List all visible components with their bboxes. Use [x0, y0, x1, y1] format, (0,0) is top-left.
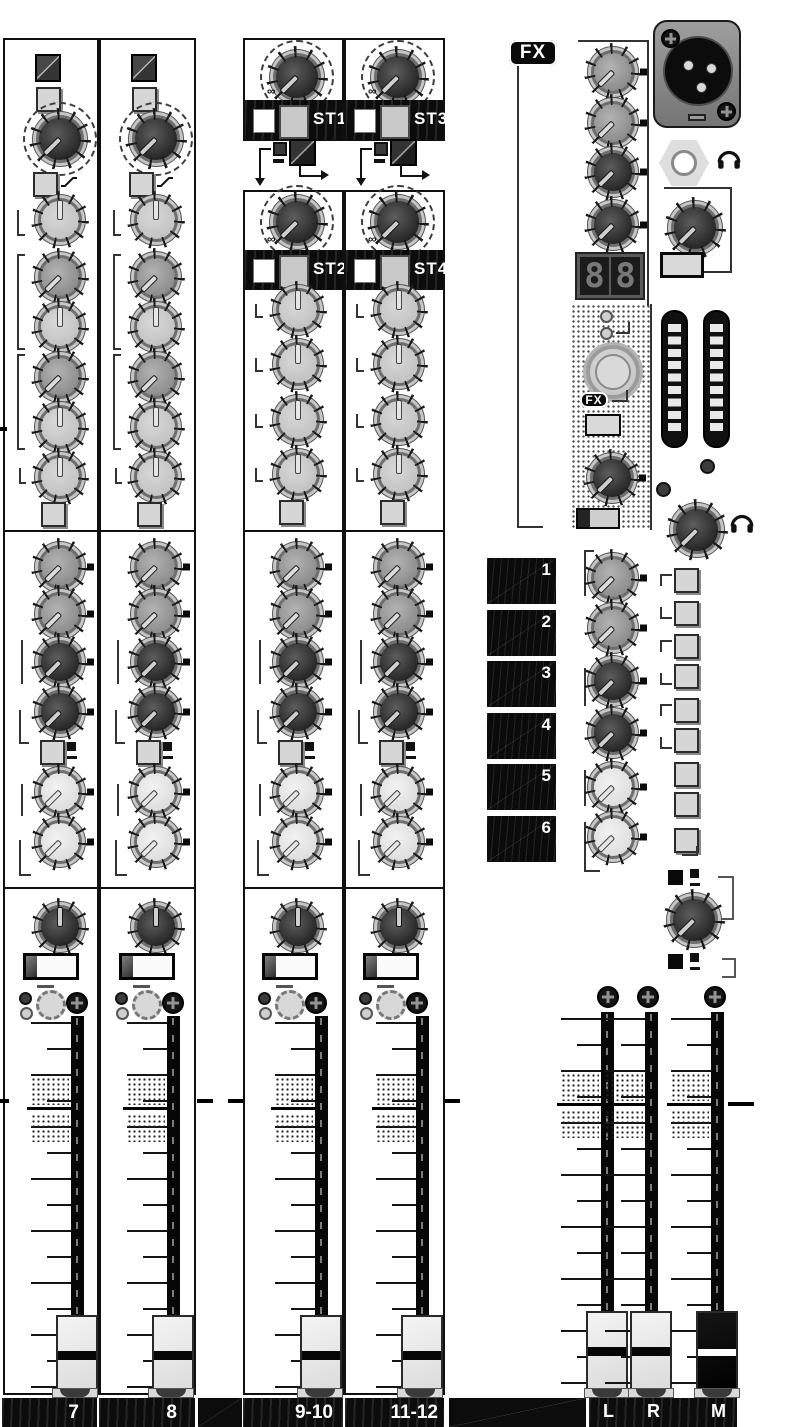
post-indicator-icon [305, 742, 314, 751]
st-gain-knob[interactable] [273, 198, 321, 246]
eq-low-knob[interactable] [377, 452, 421, 496]
edge-mark [0, 1099, 9, 1103]
knob-pointer [44, 790, 62, 808]
level-mark [325, 611, 332, 618]
bracket [115, 468, 122, 484]
eq-low-mid-knob[interactable] [38, 405, 82, 449]
fx-to-aux4-knob[interactable] [591, 203, 635, 247]
level-mark [325, 709, 332, 716]
knob-pointer [383, 710, 401, 728]
level-mark [183, 839, 190, 846]
label-right: R [647, 1401, 660, 1422]
level-mark [325, 839, 332, 846]
knob-pointer [44, 565, 62, 583]
edge-mark [0, 427, 7, 431]
fader-scale-dots [561, 1073, 599, 1101]
st-select-button[interactable] [279, 105, 309, 139]
fader-scale-dots [275, 1114, 313, 1142]
pre-indicator-icon [690, 883, 700, 886]
st-white-button[interactable] [354, 259, 376, 283]
level-mark [426, 611, 433, 618]
aux1-send-knob[interactable] [276, 545, 320, 589]
headphones-icon [716, 148, 742, 170]
post-indicator-icon [406, 742, 415, 751]
knob-pointer [140, 565, 158, 583]
mic-input-button[interactable] [131, 54, 157, 82]
bracket [113, 354, 121, 450]
unity-mark [27, 1107, 73, 1110]
stereo-strip-11-12: ∞ ST4 [344, 190, 445, 1395]
aux3-send-knob[interactable] [377, 640, 421, 684]
fx-logo-small: FX [580, 392, 608, 408]
low-cut-icon [60, 174, 78, 188]
st-label: ST1 [313, 109, 347, 129]
knob-pointer [44, 840, 62, 858]
route-line [299, 164, 323, 177]
phones-knob[interactable] [673, 506, 721, 554]
knob-pointer [282, 840, 300, 858]
aux4-master-knob[interactable] [591, 711, 635, 755]
infinity-mark: ∞ [267, 232, 276, 246]
fader-scale-dots [275, 1077, 313, 1105]
bracket [356, 358, 364, 372]
bracket [682, 846, 698, 856]
level-mark [183, 564, 190, 571]
st-label: ST2 [313, 259, 347, 279]
bracket [356, 414, 364, 428]
bracket [257, 840, 269, 876]
fx1-master-knob[interactable] [591, 765, 635, 809]
fader-scale-dots [671, 1110, 709, 1138]
aux1-send-knob[interactable] [134, 545, 178, 589]
st-label: ST4 [414, 259, 448, 279]
level-mark [183, 709, 190, 716]
aux-pre-post-button[interactable] [136, 740, 161, 765]
aux3-send-knob[interactable] [276, 640, 320, 684]
knob-pointer [140, 275, 158, 293]
xlr-face [665, 38, 731, 104]
eq-lo-mid-knob[interactable] [276, 398, 320, 442]
section-divider [245, 887, 342, 889]
channel-fader [27, 1016, 97, 1399]
fader-mount [148, 1388, 194, 1398]
fader-cap[interactable] [696, 1311, 738, 1393]
gain-knob[interactable] [36, 115, 84, 163]
knob-pointer [153, 307, 159, 327]
knob-pointer [282, 660, 300, 678]
route-source-icon [374, 159, 385, 163]
fx2-send-knob[interactable] [276, 820, 320, 864]
screw [162, 992, 184, 1014]
aux2-send-knob[interactable] [377, 592, 421, 636]
bracket [117, 784, 119, 816]
knob-pointer [279, 220, 299, 240]
knob-pointer [140, 710, 158, 728]
eq-low-knob[interactable] [38, 455, 82, 499]
channel-strip-8 [99, 38, 196, 1395]
knob-pointer [597, 835, 615, 853]
fx-level-knob[interactable] [590, 456, 634, 500]
unity-mark [601, 1103, 647, 1106]
fx-program-display: 8 8 [575, 252, 645, 300]
knob-pointer [677, 226, 697, 246]
fx-processor-panel: FX [571, 304, 652, 530]
balance-knob[interactable] [276, 905, 320, 949]
pre-indicator-icon [690, 967, 700, 970]
bracket [257, 710, 267, 744]
eq-mid-knob[interactable] [134, 355, 178, 399]
stereo-top-box-st3: ∞ ST3 [344, 38, 445, 141]
level-mark [325, 789, 332, 796]
st-select-button[interactable] [380, 105, 410, 139]
knob-pointer [140, 790, 158, 808]
aux-pre-post-button[interactable] [379, 740, 404, 765]
st-white-button[interactable] [354, 109, 376, 133]
unity-mark [667, 1103, 713, 1106]
route-switch-icon [390, 139, 417, 166]
fader-scale-dots [31, 1077, 69, 1105]
bracket [730, 187, 732, 273]
fader-cap[interactable] [300, 1315, 342, 1397]
knob-pointer [597, 626, 615, 644]
knob-pointer [596, 476, 614, 494]
level-mark [640, 222, 647, 229]
eq-high-knob[interactable] [134, 255, 178, 299]
post-indicator-icon [690, 869, 699, 878]
fader-scale-dots [376, 1077, 414, 1105]
knob-pointer [295, 290, 301, 310]
eq-bypass-button[interactable] [279, 500, 304, 525]
eq-bypass-button[interactable] [380, 500, 405, 525]
bracket [616, 322, 630, 334]
fader-scale-dots [127, 1114, 165, 1142]
level-mark [639, 475, 646, 482]
fx2-send-knob[interactable] [134, 820, 178, 864]
xlr-male-connector [653, 20, 741, 128]
balance-knob[interactable] [377, 905, 421, 949]
aux-pre-post-button[interactable] [40, 740, 65, 765]
mic-input-button[interactable] [35, 54, 61, 82]
knob-pointer [42, 137, 62, 157]
aux-pre-post-button[interactable] [278, 740, 303, 765]
aux2-master-knob[interactable] [591, 606, 635, 650]
comp-knob[interactable] [38, 198, 82, 242]
aux1-master-knob[interactable] [591, 556, 635, 600]
knob-pointer [295, 454, 301, 474]
eq-low-knob[interactable] [134, 455, 178, 499]
headphones-icon [729, 512, 755, 534]
aux4-send-knob[interactable] [377, 690, 421, 734]
arrow-down-icon [356, 178, 366, 186]
fader-mount [297, 1388, 343, 1398]
aux-master-label-6: 6 [487, 816, 556, 862]
knob-pointer [282, 710, 300, 728]
bracket [113, 210, 121, 236]
screw [661, 29, 680, 48]
level-meter-left [661, 310, 688, 448]
fx2-send-knob[interactable] [38, 820, 82, 864]
assign-button-4[interactable] [674, 664, 699, 689]
eq-hi-mid-knob[interactable] [276, 342, 320, 386]
aux3-send-knob[interactable] [134, 640, 178, 684]
eq-hi-mid-knob[interactable] [377, 342, 421, 386]
channel-fader [271, 1016, 341, 1399]
st-gain-knob[interactable] [374, 198, 422, 246]
edge-mark [228, 1099, 243, 1103]
aux3-master-knob[interactable] [591, 659, 635, 703]
eq-high-knob[interactable] [276, 288, 320, 332]
fx-mute-button[interactable] [576, 508, 620, 529]
display-digit: 8 [611, 257, 640, 295]
pre-indicator-icon [67, 756, 77, 759]
bracket [117, 640, 119, 684]
knob-pointer [57, 307, 63, 327]
eq-lo-mid-knob[interactable] [377, 398, 421, 442]
knob-pointer [383, 840, 401, 858]
knob-pointer [396, 907, 402, 927]
channel-label-9-10: 9-10 [243, 1398, 343, 1427]
knob-pointer [597, 223, 615, 241]
fx1-send-knob[interactable] [134, 770, 178, 814]
knob-pointer [153, 407, 159, 427]
aux3-send-knob[interactable] [38, 640, 82, 684]
eq-high-knob[interactable] [377, 288, 421, 332]
arrow-right-icon [422, 170, 430, 180]
screw [704, 986, 726, 1008]
st-gain-knob[interactable] [374, 53, 422, 101]
eq-mid-freq-knob[interactable] [134, 305, 178, 349]
mono-fader [667, 1012, 737, 1395]
bracket [358, 840, 370, 876]
fader-cap[interactable] [56, 1315, 98, 1397]
aux1-send-knob[interactable] [377, 545, 421, 589]
bracket [255, 358, 263, 372]
arrow-down-icon [255, 178, 265, 186]
eq-bypass-button[interactable] [41, 502, 66, 527]
knob-pointer [295, 907, 301, 927]
assign-button-1[interactable] [674, 568, 699, 593]
bracket [660, 704, 672, 716]
route-source-icon [374, 142, 388, 156]
fx-to-aux3-knob[interactable] [591, 150, 635, 194]
aux4-send-knob[interactable] [134, 690, 178, 734]
mono-route-square [668, 954, 683, 969]
fader-mount [694, 1388, 740, 1398]
fader-scale-dots [376, 1114, 414, 1142]
level-mark [87, 839, 94, 846]
mute-button[interactable] [119, 953, 175, 980]
comp-knob[interactable] [134, 198, 178, 242]
route-line [400, 164, 424, 177]
knob-pointer [380, 75, 400, 95]
eq-high-knob[interactable] [38, 255, 82, 299]
knob-pointer [679, 528, 699, 548]
level-mark [640, 784, 647, 791]
fader-cap[interactable] [630, 1311, 672, 1393]
fx1-send-knob[interactable] [276, 770, 320, 814]
bracket [255, 414, 263, 428]
channel-fader [123, 1016, 193, 1399]
knob-pointer [396, 454, 402, 474]
level-mark [640, 120, 647, 127]
bracket [17, 254, 25, 350]
fx-to-aux2-knob[interactable] [591, 101, 635, 145]
mute-led-mark [37, 985, 54, 988]
bracket [722, 958, 736, 978]
aux2-send-knob[interactable] [134, 592, 178, 636]
knob-pointer [279, 75, 299, 95]
phones-level-knob[interactable] [671, 204, 719, 252]
eq-mid-knob[interactable] [38, 355, 82, 399]
bracket [356, 468, 364, 482]
mute-led [258, 992, 271, 1005]
mono-route-square [668, 870, 683, 885]
route-line [360, 148, 362, 178]
fader-cap[interactable] [401, 1315, 443, 1397]
gain-knob[interactable] [132, 115, 180, 163]
arrow-right-icon [321, 170, 329, 180]
assign-button-8[interactable] [674, 792, 699, 817]
fx-to-aux1-knob[interactable] [591, 50, 635, 94]
label-spacer [449, 1398, 586, 1427]
bracket [115, 840, 127, 876]
knob-pointer [295, 400, 301, 420]
knob-pointer [44, 660, 62, 678]
mute-led [115, 992, 128, 1005]
knob-pointer [44, 275, 62, 293]
assign-button-5[interactable] [674, 698, 699, 723]
mute-button[interactable] [363, 953, 419, 980]
mute-led-mark [133, 985, 150, 988]
knob-pointer [138, 137, 158, 157]
channel-fader [372, 1016, 442, 1399]
eq-mid-freq-knob[interactable] [38, 305, 82, 349]
pan-knob[interactable] [134, 905, 178, 949]
pan-knob[interactable] [38, 905, 82, 949]
knob-pointer [597, 170, 615, 188]
bracket [19, 710, 29, 744]
st-gain-knob[interactable] [273, 53, 321, 101]
fx1-send-knob[interactable] [38, 770, 82, 814]
unity-mark [372, 1107, 418, 1110]
assign-button-7[interactable] [674, 762, 699, 787]
bracket [660, 607, 672, 619]
bracket [17, 354, 25, 450]
level-mark [426, 709, 433, 716]
knob-pointer [597, 679, 615, 697]
bracket [360, 784, 362, 816]
bracket [17, 210, 25, 236]
level-mark [640, 625, 647, 632]
aux-master-label-4: 4 [487, 713, 556, 759]
fader-scale-dots [605, 1073, 643, 1101]
label-spacer [198, 1398, 242, 1427]
label-mono: M [711, 1401, 726, 1422]
level-mark [87, 709, 94, 716]
fader-mount [628, 1388, 674, 1398]
knob-pointer [383, 660, 401, 678]
mute-button[interactable] [23, 953, 79, 980]
master-label-bar: L R M [589, 1398, 737, 1427]
level-mark [87, 564, 94, 571]
fx2-master-knob[interactable] [591, 815, 635, 859]
fx1-send-knob[interactable] [377, 770, 421, 814]
mute-button[interactable] [262, 953, 318, 980]
bracket [259, 640, 261, 684]
assign-button-2[interactable] [674, 601, 699, 626]
post-indicator-icon [163, 742, 172, 751]
level-mark [183, 611, 190, 618]
fader-cap[interactable] [152, 1315, 194, 1397]
xlr-pin [696, 82, 707, 93]
aux-master-label-1: 1 [487, 558, 556, 604]
level-mark [325, 564, 332, 571]
unity-mark [557, 1103, 603, 1106]
aux2-send-knob[interactable] [276, 592, 320, 636]
knob-pointer [383, 565, 401, 583]
assign-button-6[interactable] [674, 728, 699, 753]
main-fader-right [601, 1012, 671, 1395]
level-meter-right [703, 310, 730, 448]
level-mark [183, 659, 190, 666]
eq-low-knob[interactable] [276, 452, 320, 496]
aux1-send-knob[interactable] [38, 545, 82, 589]
phones-source-button[interactable] [660, 252, 704, 278]
fx-program-button[interactable] [585, 414, 621, 436]
st-routing-diagram [251, 142, 335, 188]
knob-pointer [140, 375, 158, 393]
assign-button-3[interactable] [674, 634, 699, 659]
fx-signal-led [600, 310, 613, 323]
section-divider [5, 530, 97, 532]
knob-pointer [140, 660, 158, 678]
st-input-bar: ST1 [245, 100, 342, 140]
fader-scale-dots [605, 1110, 643, 1138]
screw [66, 992, 88, 1014]
aux4-send-knob[interactable] [38, 690, 82, 734]
aux4-send-knob[interactable] [276, 690, 320, 734]
bracket [660, 574, 672, 586]
post-indicator-icon [67, 742, 76, 751]
st-white-button[interactable] [253, 259, 275, 283]
bracket [115, 710, 125, 744]
aux-master-label-2: 2 [487, 610, 556, 656]
fader-mount [397, 1388, 443, 1398]
route-source-icon [273, 159, 284, 163]
knob-pointer [57, 407, 63, 427]
edge-mark [197, 1099, 213, 1103]
unity-edge-mark [728, 1102, 754, 1106]
screw [637, 986, 659, 1008]
level-mark [640, 575, 647, 582]
fx2-send-knob[interactable] [377, 820, 421, 864]
knob-pointer [57, 457, 63, 477]
xlr-pin [683, 60, 694, 71]
aux2-send-knob[interactable] [38, 592, 82, 636]
knob-pointer [597, 121, 615, 139]
bracket [612, 390, 628, 402]
st-white-button[interactable] [253, 109, 275, 133]
level-mark [640, 730, 647, 737]
level-mark [640, 169, 647, 176]
level-mark [640, 678, 647, 685]
knob-pointer [153, 457, 159, 477]
eq-bypass-button[interactable] [137, 502, 162, 527]
mono-level-knob[interactable] [670, 896, 718, 944]
eq-low-mid-knob[interactable] [134, 405, 178, 449]
bracket [113, 254, 121, 350]
post-indicator-icon [690, 953, 699, 962]
